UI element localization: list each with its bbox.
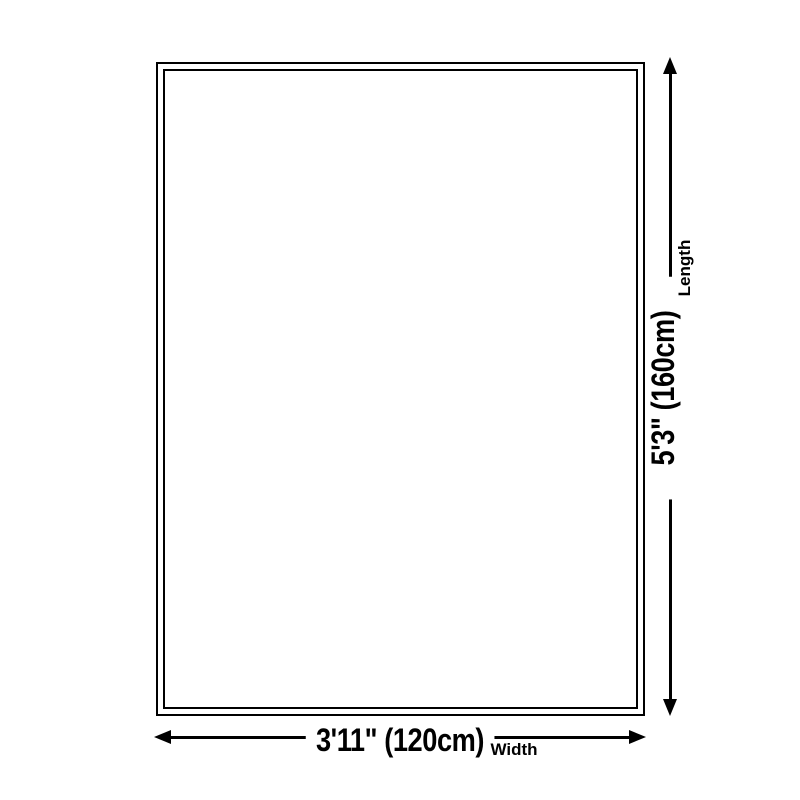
arrow-up-icon [663,57,677,74]
rug-outline-rect [156,62,645,716]
rug-size-diagram: 5'3" (160cm) Length 3'11" (120cm) Width [0,0,800,800]
length-label: Length [675,240,695,297]
arrow-right-icon [629,730,646,744]
arrow-left-icon [154,730,171,744]
arrow-down-icon [663,699,677,716]
length-value: 5'3" (160cm) [647,277,679,500]
width-value: 3'11" (120cm) [306,724,494,756]
rug-inner-border [163,69,638,709]
width-label: Width [490,740,537,760]
